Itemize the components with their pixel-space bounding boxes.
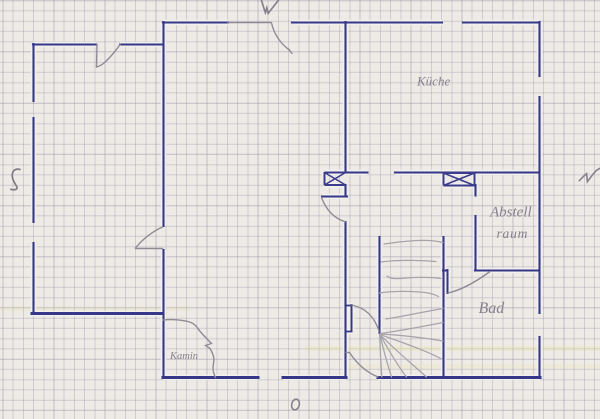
svg-text:Küche: Küche [416,74,450,89]
svg-text:raum: raum [497,226,529,241]
svg-text:Abstell: Abstell [489,205,532,221]
svg-text:Bad: Bad [479,300,506,317]
svg-text:Kamin: Kamin [169,351,198,362]
